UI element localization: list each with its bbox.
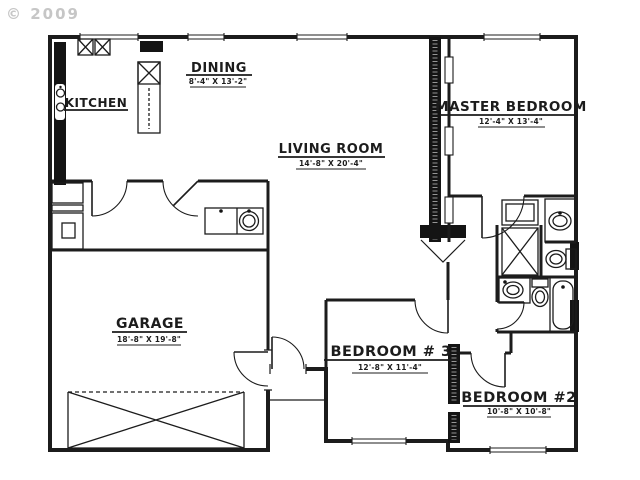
hall-bath-door bbox=[497, 302, 524, 329]
copyright-watermark: © 2009 bbox=[6, 5, 80, 23]
bedroom3-window bbox=[352, 437, 406, 445]
shower-stall bbox=[502, 228, 538, 275]
living-room-dim: 14'-8" X 20'-4" bbox=[299, 159, 363, 168]
garage-label: GARAGE 18'-8" X 19'-8" bbox=[112, 316, 187, 345]
bedroom3-label: BEDROOM # 3 12'-8" X 11'-4" bbox=[324, 344, 458, 373]
bedroom2-window bbox=[490, 446, 546, 454]
refrigerator bbox=[140, 41, 163, 52]
interior-walls bbox=[50, 181, 576, 390]
hall-bath-sink bbox=[499, 278, 530, 303]
master-closet-doors bbox=[445, 57, 453, 223]
bath-window-right-upper bbox=[570, 242, 579, 270]
garage-house-door bbox=[234, 352, 268, 386]
master-bedroom-dim: 12'-4" X 13'-4" bbox=[479, 117, 543, 126]
master-bath-sink bbox=[545, 199, 576, 242]
dining-name: DINING bbox=[191, 61, 247, 76]
master-bedroom-window bbox=[484, 33, 540, 41]
bedroom3-door bbox=[415, 300, 448, 333]
kitchen-sink bbox=[55, 84, 65, 120]
bedroom3-name: BEDROOM # 3 bbox=[330, 344, 451, 360]
mudroom-vanity-sink bbox=[205, 208, 263, 234]
garage-name: GARAGE bbox=[116, 316, 184, 332]
dining-label: DINING 8'-4" X 13'-2" bbox=[186, 61, 252, 87]
bath-fixtures bbox=[499, 199, 576, 332]
water-heater bbox=[52, 213, 83, 249]
hatched-walls bbox=[420, 37, 466, 443]
bedroom2-door bbox=[471, 353, 505, 387]
garage-slab-cross bbox=[68, 392, 244, 448]
dining-window bbox=[188, 33, 224, 41]
floor-plan-drawing: © 2009 bbox=[0, 0, 640, 480]
master-entry-header-wall bbox=[420, 225, 466, 238]
bedroom2-dim: 10'-8" X 10'-8" bbox=[487, 407, 551, 416]
bedroom2-label: BEDROOM #2 10'-8" X 10'-8" bbox=[461, 390, 577, 417]
master-entry-angled-wall bbox=[421, 240, 465, 262]
living-master-hatched-wall bbox=[429, 37, 441, 242]
bedroom-divider-hatched-lower bbox=[448, 412, 460, 443]
living-room-window bbox=[297, 33, 347, 41]
master-suite-door bbox=[482, 196, 524, 238]
master-bedroom-name: MASTER BEDROOM bbox=[435, 99, 587, 115]
stove bbox=[78, 39, 110, 55]
master-bedroom-label: MASTER BEDROOM 12'-4" X 13'-4" bbox=[435, 99, 587, 127]
garage-dim: 18'-8" X 19'-8" bbox=[117, 335, 181, 344]
kitchen-label: KITCHEN bbox=[64, 96, 128, 110]
kitchen-island bbox=[138, 62, 160, 133]
living-room-name: LIVING ROOM bbox=[279, 142, 384, 157]
linen-closet bbox=[502, 200, 538, 225]
bedroom2-name: BEDROOM #2 bbox=[461, 390, 577, 406]
floor-plan-page: © 2009 bbox=[0, 0, 640, 480]
dining-dim: 8'-4" X 13'-2" bbox=[189, 77, 248, 86]
living-room-label: LIVING ROOM 14'-8" X 20'-4" bbox=[278, 142, 385, 169]
hall-bath-toilet bbox=[532, 279, 548, 307]
kitchen-name: KITCHEN bbox=[65, 96, 128, 110]
garage-entry-door-open bbox=[163, 181, 198, 216]
bath-window-right-lower bbox=[570, 300, 579, 332]
bedroom3-dim: 12'-8" X 11'-4" bbox=[358, 363, 422, 372]
laundry-door bbox=[92, 181, 127, 216]
front-door-opening bbox=[270, 364, 306, 374]
washer-dryer bbox=[52, 183, 83, 211]
